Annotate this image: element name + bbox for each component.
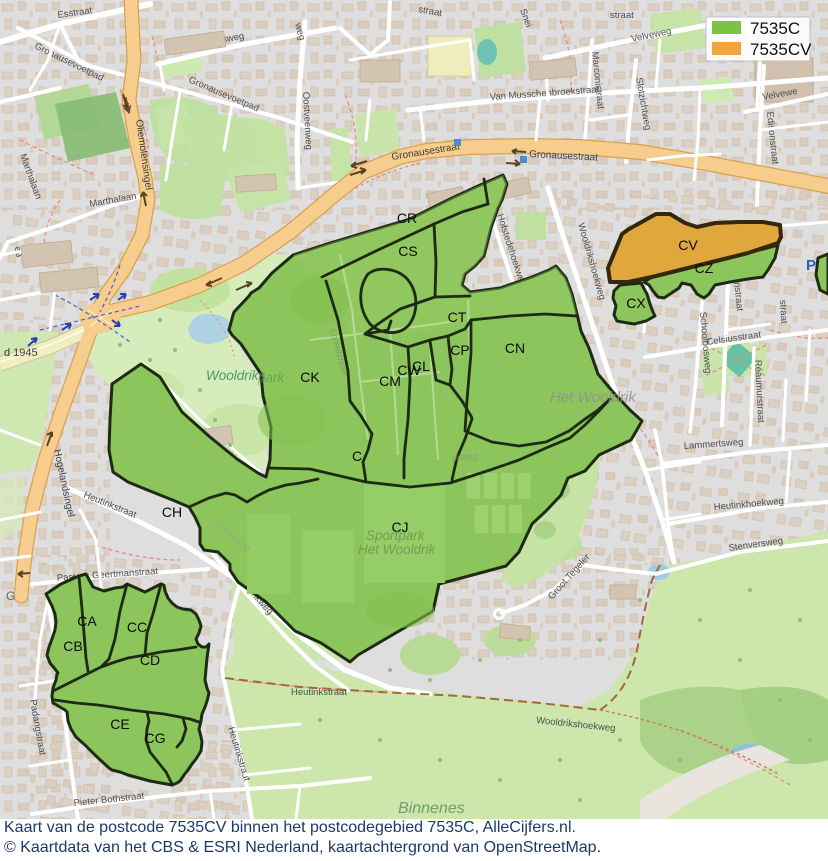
svg-text:CL: CL — [412, 358, 430, 374]
svg-text:CX: CX — [626, 295, 646, 311]
svg-text:CP: CP — [450, 342, 469, 358]
svg-text:CA: CA — [77, 613, 97, 629]
svg-text:CN: CN — [505, 340, 525, 356]
svg-text:G: G — [6, 589, 15, 603]
svg-text:Wooldriks: Wooldriks — [206, 368, 266, 383]
svg-text:CE: CE — [110, 716, 129, 732]
svg-text:Binnenes: Binnenes — [398, 800, 465, 817]
svg-text:CB: CB — [63, 638, 82, 654]
svg-text:Heutinkstraat: Heutinkstraat — [291, 687, 347, 698]
svg-text:straat: straat — [610, 10, 634, 21]
svg-text:CH: CH — [162, 504, 182, 520]
svg-text:Het Wooldrik: Het Wooldrik — [550, 389, 637, 406]
svg-text:park: park — [257, 370, 286, 385]
svg-text:CM: CM — [379, 373, 401, 389]
svg-text:C: C — [352, 448, 362, 464]
svg-text:CS: CS — [398, 243, 417, 259]
svg-text:7535CV: 7535CV — [750, 40, 812, 59]
svg-text:CG: CG — [145, 730, 166, 746]
svg-text:CC: CC — [127, 619, 147, 635]
svg-text:Sportpark: Sportpark — [366, 528, 426, 543]
svg-text:CR: CR — [397, 210, 417, 226]
svg-text:P: P — [806, 257, 816, 274]
svg-text:7535C: 7535C — [750, 19, 800, 38]
svg-text:Het Wooldrik: Het Wooldrik — [358, 542, 437, 557]
svg-text:CK: CK — [300, 369, 320, 385]
svg-text:straat: straat — [777, 300, 789, 325]
svg-text:d 1945: d 1945 — [4, 347, 38, 359]
svg-text:erweg: erweg — [451, 451, 478, 464]
svg-text:CT: CT — [448, 309, 467, 325]
svg-text:CV: CV — [678, 237, 698, 253]
svg-text:CZ: CZ — [695, 260, 714, 276]
svg-text:CD: CD — [140, 652, 160, 668]
